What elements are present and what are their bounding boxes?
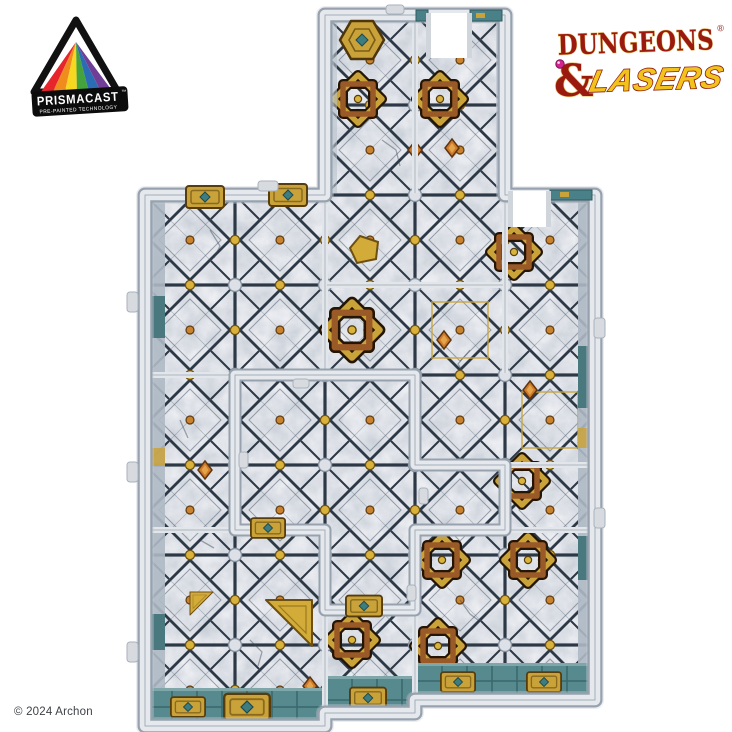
jewel-highlight (557, 61, 560, 64)
logo-subtitle: LASERS (587, 60, 727, 99)
hex-plaque (340, 21, 384, 59)
prismacast-badge: PRISMACAST ™ PRE-PAINTED TECHNOLOGY (12, 10, 140, 118)
prismacast-trademark: ™ (121, 89, 126, 95)
dungeons-and-lasers-logo: DUNGEONS ® & LASERS (548, 12, 730, 104)
jewel-icon (556, 60, 564, 68)
product-page: PRISMACAST ™ PRE-PAINTED TECHNOLOGY DUNG… (0, 0, 732, 732)
copyright-notice: © 2024 Archon (14, 706, 93, 718)
registered-mark: ® (717, 23, 724, 33)
